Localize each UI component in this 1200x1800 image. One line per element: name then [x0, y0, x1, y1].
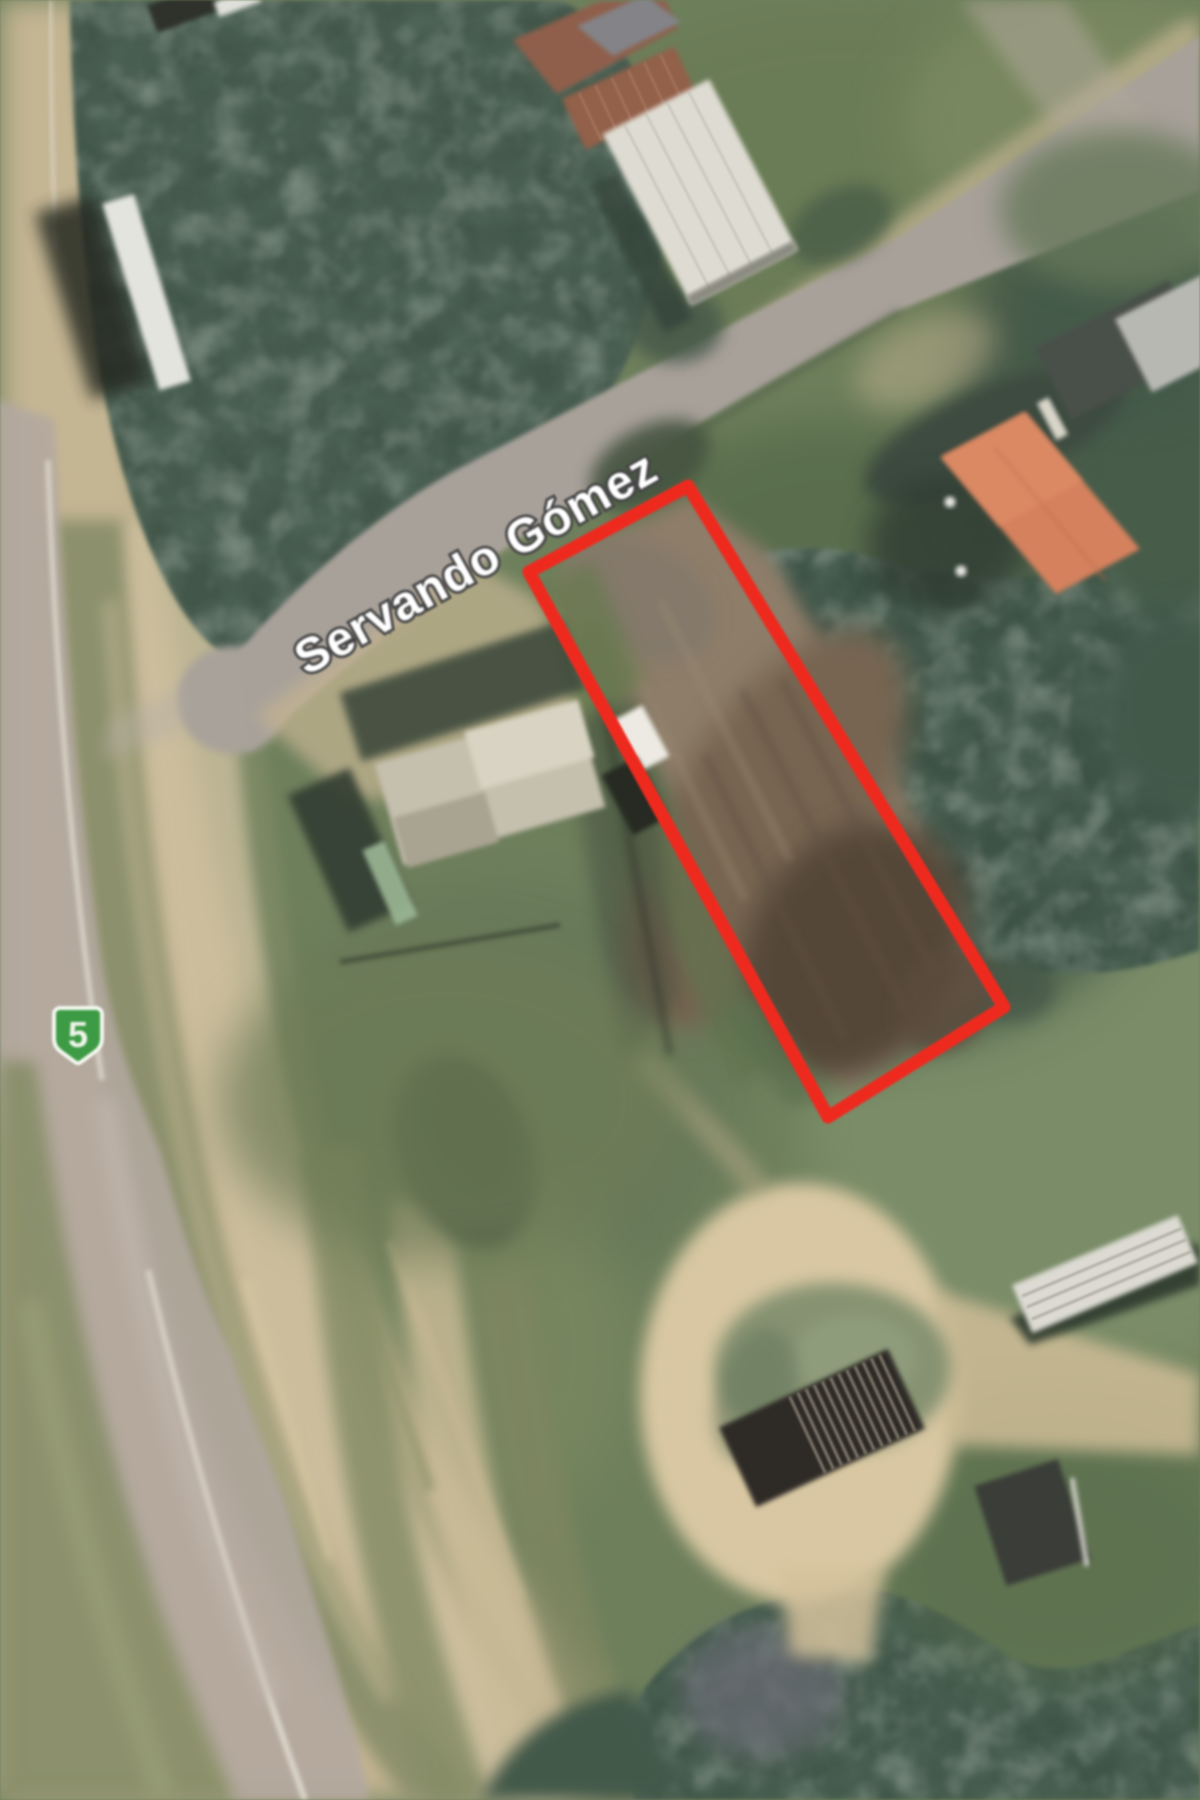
svg-text:5: 5: [68, 1014, 88, 1055]
